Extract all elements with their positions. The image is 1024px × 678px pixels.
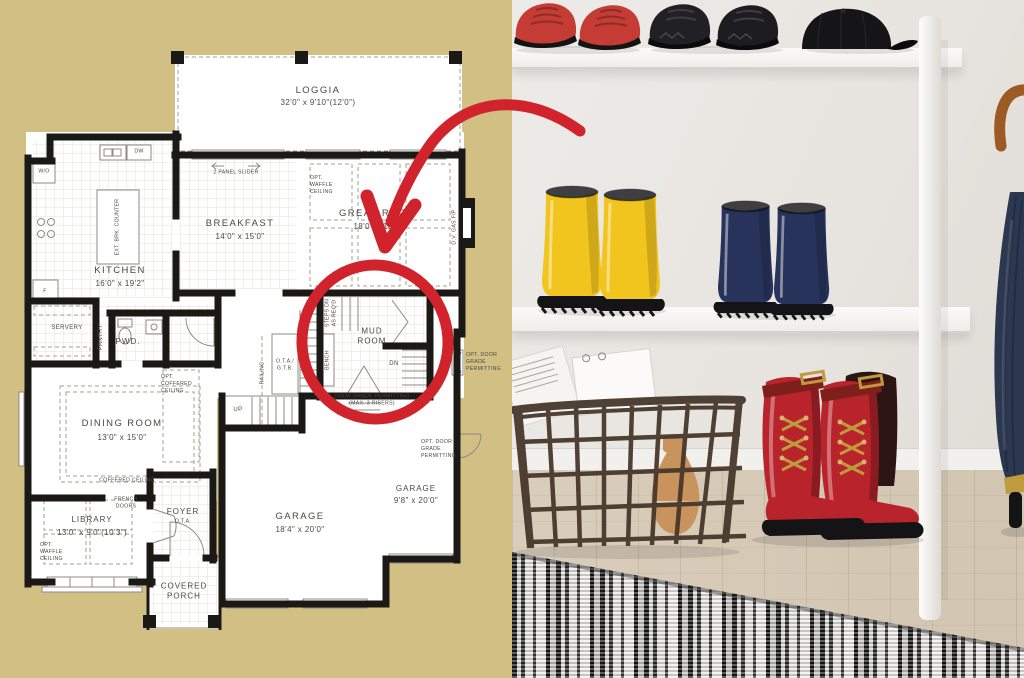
red-sneakers: [514, 3, 641, 50]
black-sneakers: [648, 4, 779, 50]
label-great-room-dims: 18'0" x 15'0": [353, 222, 402, 232]
label-loggia-name: LOGGIA: [296, 85, 341, 97]
wire-storage-basket: [512, 346, 746, 548]
label-bench: BENCH: [325, 350, 332, 370]
label-dining-name: DINING ROOM: [82, 418, 163, 430]
red-lace-up-boots: [762, 371, 924, 540]
basket-grid: [514, 400, 746, 548]
label-railing: RAILING: [260, 362, 267, 385]
photo-items: [512, 0, 1024, 678]
label-dn: DN: [389, 361, 398, 369]
mudroom-photo-panel: [512, 0, 1024, 678]
label-fridge: F: [43, 289, 46, 296]
label-ext-brk-counter: EXT. BRK. COUNTER: [115, 199, 122, 256]
label-french-doors: FRENCH DOORS: [107, 496, 145, 510]
label-up: UP: [233, 407, 242, 415]
black-baseball-cap: [802, 9, 918, 51]
label-opt-waffle-library: OPT. WAFFLE CEILING: [40, 542, 76, 562]
label-kitchen-name: KITCHEN: [94, 265, 146, 277]
navy-umbrella: [994, 90, 1024, 528]
label-pantry: PANTRY: [98, 324, 106, 350]
label-coffered-ceiling: COFFERED CEILING: [99, 478, 155, 485]
composite-image: LOGGIA 32'0" x 9'10"(12'0") BREAKFAST 14…: [0, 0, 1024, 678]
label-steps-dn: STEPS DN AS REQ'D: [324, 296, 338, 330]
label-walkout: W/O: [38, 169, 49, 176]
label-breakfast-dims: 14'0" x 15'0": [215, 232, 264, 242]
label-breakfast-name: BREAKFAST: [206, 218, 275, 230]
wooden-umbrella-handle: [1000, 90, 1024, 146]
label-great-room-name: GREAT ROOM: [339, 208, 417, 220]
label-loggia-dims: 32'0" x 9'10"(12'0"): [281, 98, 356, 108]
fireplace-firebox: [463, 208, 471, 238]
label-garage-dims: 18'4" x 20'0": [275, 525, 324, 535]
label-servery: SERVERY: [51, 325, 82, 333]
floor-plan-panel: LOGGIA 32'0" x 9'10"(12'0") BREAKFAST 14…: [0, 0, 512, 678]
label-ota-gtb: O.T.A./ G.T.B.: [272, 358, 298, 372]
label-dishwasher: DW: [134, 149, 143, 156]
label-library-name: LIBRARY: [71, 515, 112, 525]
label-opt-door-grade-mud: OPT. DOOR GRADE PERMITTING: [466, 352, 512, 372]
label-dv-gas-fp: D.V. GAS F/P: [452, 209, 459, 244]
label-library-dims: 13'0" x 9'0"(10'3"): [57, 528, 127, 538]
label-mud-room: MUD ROOM: [349, 327, 395, 348]
label-garage-name: GARAGE: [275, 511, 324, 523]
label-opt-door-grade-garage: OPT. DOOR GRADE PERMITTING: [421, 439, 463, 459]
label-two-panel-slider: 2 PANEL SLIDER: [213, 170, 258, 177]
label-foyer: FOYER: [167, 507, 200, 517]
label-opt-coffered: OPT. COFFERED CEILING: [161, 374, 203, 394]
label-foyer-ota: O.T.A.: [175, 519, 191, 526]
label-garage-tandem-name: GARAGE: [396, 484, 436, 494]
navy-rain-boots: [714, 201, 834, 320]
label-door-grade: DOOR GRADE PERMITTING (MAX. 3 RISERS): [332, 393, 412, 407]
label-opt-waffle-great: OPT. WAFFLE CEILING: [310, 175, 346, 195]
label-powder-room: PWD.: [116, 337, 141, 347]
yellow-rain-boots: [537, 186, 665, 316]
label-garage-tandem-dims: 9'8" x 20'0": [394, 496, 438, 506]
floor-plan-drawing: [0, 0, 512, 678]
label-dining-dims: 13'0" x 15'0": [97, 433, 146, 443]
label-covered-porch: COVERED PORCH: [153, 582, 215, 603]
label-kitchen-dims: 16'0" x 19'2": [95, 279, 144, 289]
